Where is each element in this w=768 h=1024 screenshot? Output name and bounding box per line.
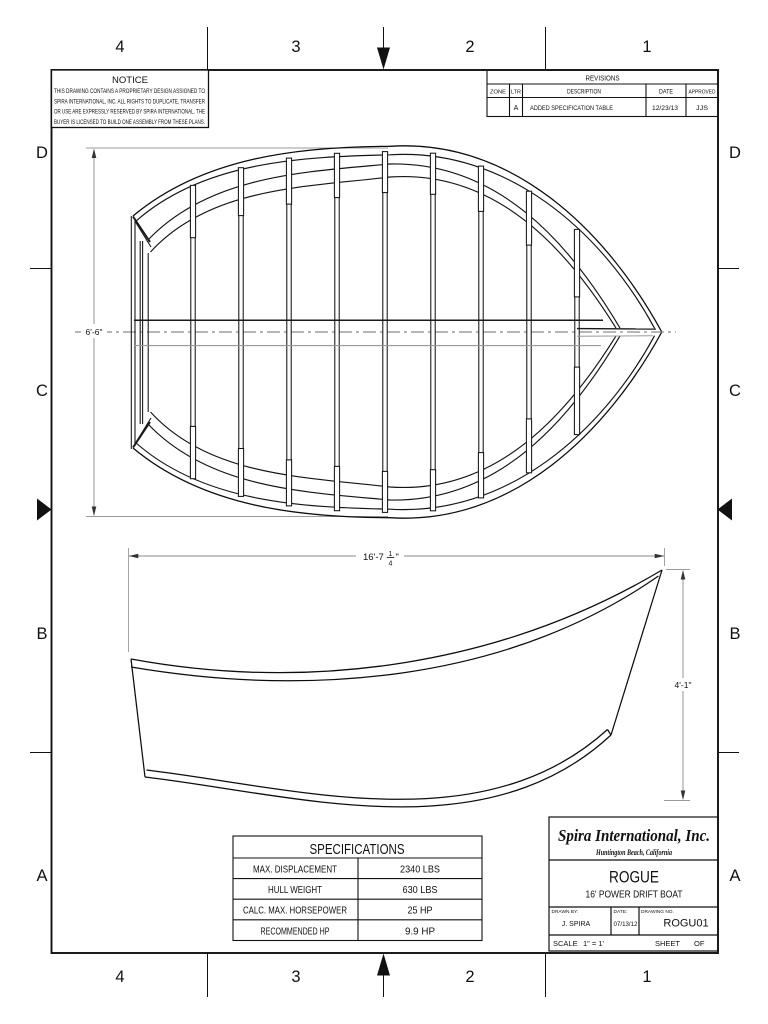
svg-text:ROGU01: ROGU01 — [663, 918, 708, 930]
svg-text:SCALE: SCALE — [553, 939, 578, 948]
svg-text:2: 2 — [465, 38, 474, 56]
svg-text:A: A — [729, 867, 740, 885]
svg-text:SPIRA INTERNATIONAL, INC. ALL: SPIRA INTERNATIONAL, INC. ALL RIGHTS TO … — [54, 98, 205, 105]
svg-text:3: 3 — [291, 38, 300, 56]
svg-text:4: 4 — [115, 38, 124, 56]
svg-text:D: D — [729, 144, 741, 162]
svg-text:SHEET: SHEET — [655, 939, 680, 948]
svg-text:2340 LBS: 2340 LBS — [400, 864, 440, 876]
svg-text:1: 1 — [642, 38, 651, 56]
svg-text:HULL WEIGHT: HULL WEIGHT — [268, 884, 322, 896]
svg-text:1" = 1': 1" = 1' — [583, 939, 605, 948]
svg-text:Spira International, Inc.: Spira International, Inc. — [558, 826, 710, 845]
svg-text:4: 4 — [115, 968, 124, 986]
svg-text:APPROVED: APPROVED — [689, 90, 716, 96]
svg-text:A: A — [36, 867, 47, 885]
svg-text:3: 3 — [291, 968, 300, 986]
svg-text:6'-6": 6'-6" — [86, 327, 103, 337]
svg-text:MAX. DISPLACEMENT: MAX. DISPLACEMENT — [253, 864, 337, 876]
svg-text:ROGUE: ROGUE — [609, 868, 659, 887]
svg-text:1: 1 — [389, 551, 393, 558]
svg-text:16' POWER DRIFT BOAT: 16' POWER DRIFT BOAT — [586, 889, 683, 901]
svg-text:BUYER IS LICENSED TO BUILD ONE: BUYER IS LICENSED TO BUILD ONE ASSEMBLY … — [54, 119, 205, 126]
svg-text:B: B — [729, 625, 740, 643]
svg-text:A: A — [514, 105, 519, 112]
svg-text:": " — [396, 552, 399, 563]
svg-text:2: 2 — [465, 968, 474, 986]
svg-text:9.9 HP: 9.9 HP — [405, 925, 435, 937]
svg-text:DATE: DATE — [659, 90, 673, 96]
svg-text:Huntington Beach, California: Huntington Beach, California — [595, 847, 672, 857]
svg-text:JJS: JJS — [696, 105, 709, 112]
svg-text:RECOMMENDED HP: RECOMMENDED HP — [261, 925, 330, 937]
svg-text:1: 1 — [642, 968, 651, 986]
svg-text:SPECIFICATIONS: SPECIFICATIONS — [310, 841, 405, 858]
svg-text:NOTICE: NOTICE — [112, 75, 148, 86]
svg-text:DRAWN BY:: DRAWN BY: — [552, 909, 579, 915]
svg-text:REVISIONS: REVISIONS — [586, 76, 620, 83]
svg-text:4: 4 — [389, 561, 393, 568]
svg-text:07/13/12: 07/13/12 — [614, 921, 638, 928]
svg-text:D: D — [36, 144, 48, 162]
svg-text:C: C — [36, 382, 48, 400]
svg-text:25 HP: 25 HP — [408, 905, 433, 917]
svg-text:DATE:: DATE: — [614, 909, 628, 915]
svg-text:ADDED SPECIFICATION TABLE: ADDED SPECIFICATION TABLE — [530, 105, 614, 112]
svg-text:LTR: LTR — [511, 90, 521, 96]
svg-text:DRAWING NO.: DRAWING NO. — [641, 909, 674, 915]
svg-text:CALC. MAX. HORSEPOWER: CALC. MAX. HORSEPOWER — [243, 905, 347, 917]
svg-text:ZONE: ZONE — [490, 90, 506, 96]
svg-text:THIS DRAWING CONTAINS A PROPRI: THIS DRAWING CONTAINS A PROPRIETARY DESI… — [54, 88, 205, 95]
svg-text:4'-1": 4'-1" — [675, 680, 692, 690]
svg-text:J. SPIRA: J. SPIRA — [562, 921, 591, 928]
svg-text:630 LBS: 630 LBS — [403, 884, 438, 896]
svg-text:16'-7: 16'-7 — [363, 552, 384, 563]
svg-text:12/23/13: 12/23/13 — [652, 105, 678, 112]
svg-text:OF: OF — [694, 939, 705, 948]
svg-text:OR USE ARE EXPRESSLY RESERVED: OR USE ARE EXPRESSLY RESERVED BY SPIRA I… — [54, 109, 205, 116]
svg-text:C: C — [729, 382, 741, 400]
svg-text:DESCRIPTION: DESCRIPTION — [567, 90, 601, 96]
svg-text:B: B — [36, 625, 47, 643]
